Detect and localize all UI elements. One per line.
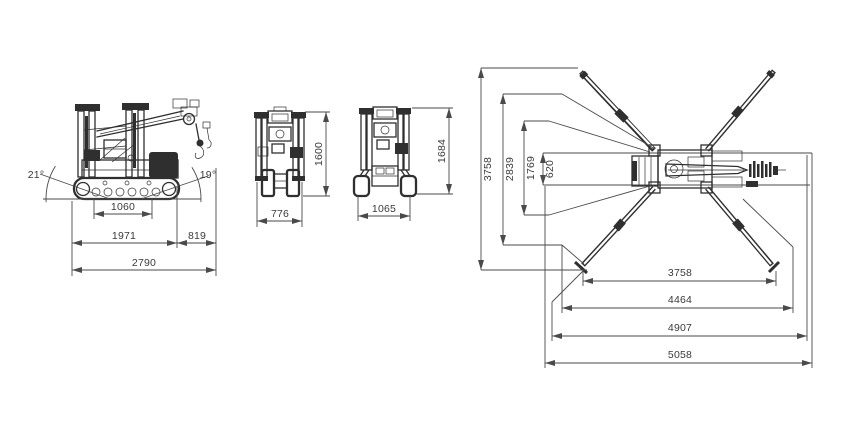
front-view-narrow: 1600 776 bbox=[254, 107, 330, 227]
dim-width-wide-label: 1065 bbox=[372, 203, 396, 215]
dim-height-narrow: 1600 bbox=[303, 112, 330, 196]
dim-height-wide-label: 1684 bbox=[436, 139, 448, 163]
top-view: 3758 2839 1769 620 bbox=[481, 68, 812, 368]
dim-track-width: 620 bbox=[543, 153, 556, 185]
dim-length-max: 5058 bbox=[545, 349, 812, 363]
front-view-wide: 1684 1065 bbox=[354, 107, 453, 221]
dim-width-narrow: 776 bbox=[257, 182, 302, 227]
extension-lines-left bbox=[545, 186, 584, 368]
outrigger-upper-right bbox=[707, 71, 774, 150]
dim-track-length-label: 1971 bbox=[112, 230, 136, 242]
front-wide-machine bbox=[354, 107, 416, 196]
dim-angle-left-label: 21° bbox=[28, 169, 44, 181]
dim-overhang-label: 819 bbox=[188, 230, 206, 242]
dim-wheelbase-label: 1060 bbox=[111, 201, 135, 213]
dim-height-wide: 1684 bbox=[412, 108, 453, 194]
dim-overall-length: 2790 bbox=[72, 257, 216, 270]
dim-height-narrow-label: 1600 bbox=[313, 142, 325, 166]
outrigger-lower-left bbox=[575, 188, 654, 273]
dim-length-feet: 3758 bbox=[583, 267, 776, 286]
technical-drawing-canvas: 21° 19° 1060 1971 819 2790 bbox=[0, 0, 860, 434]
crane-body-top bbox=[632, 145, 742, 193]
dim-top-width-inner-label: 1769 bbox=[525, 156, 537, 180]
dim-gradeability-left: 21° bbox=[28, 166, 110, 202]
dim-overall-length-label: 2790 bbox=[132, 257, 156, 269]
outrigger-lower-right bbox=[707, 188, 779, 272]
dim-length-outer-label: 4907 bbox=[668, 322, 692, 334]
crane-dimension-drawing: 21° 19° 1060 1971 819 2790 bbox=[0, 0, 860, 434]
dim-length-mid-label: 4464 bbox=[668, 294, 692, 306]
outrigger-upper-left bbox=[581, 72, 654, 150]
front-narrow-machine bbox=[254, 107, 306, 196]
side-view: 21° 19° 1060 1971 819 2790 bbox=[28, 99, 216, 276]
dim-top-width-mid-label: 2839 bbox=[504, 157, 516, 181]
dim-track-width-label: 620 bbox=[544, 160, 556, 178]
boom-top bbox=[666, 164, 747, 176]
dim-length-outer: 4907 bbox=[552, 322, 807, 336]
dim-width-wide: 1065 bbox=[358, 196, 410, 221]
dim-length-max-label: 5058 bbox=[668, 349, 692, 361]
dim-length-mid: 4464 bbox=[562, 294, 793, 308]
dim-wheelbase: 1060 bbox=[94, 198, 152, 219]
dim-length-feet-label: 3758 bbox=[668, 267, 692, 279]
hook-block-top bbox=[746, 161, 786, 187]
dim-width-narrow-label: 776 bbox=[271, 208, 289, 220]
crawler-track-side bbox=[74, 178, 179, 199]
dim-angle-right-label: 19° bbox=[200, 169, 216, 181]
crane-body-side bbox=[82, 138, 178, 178]
hook-block-side bbox=[195, 122, 211, 159]
dim-top-width-outer-label: 3758 bbox=[482, 157, 494, 181]
